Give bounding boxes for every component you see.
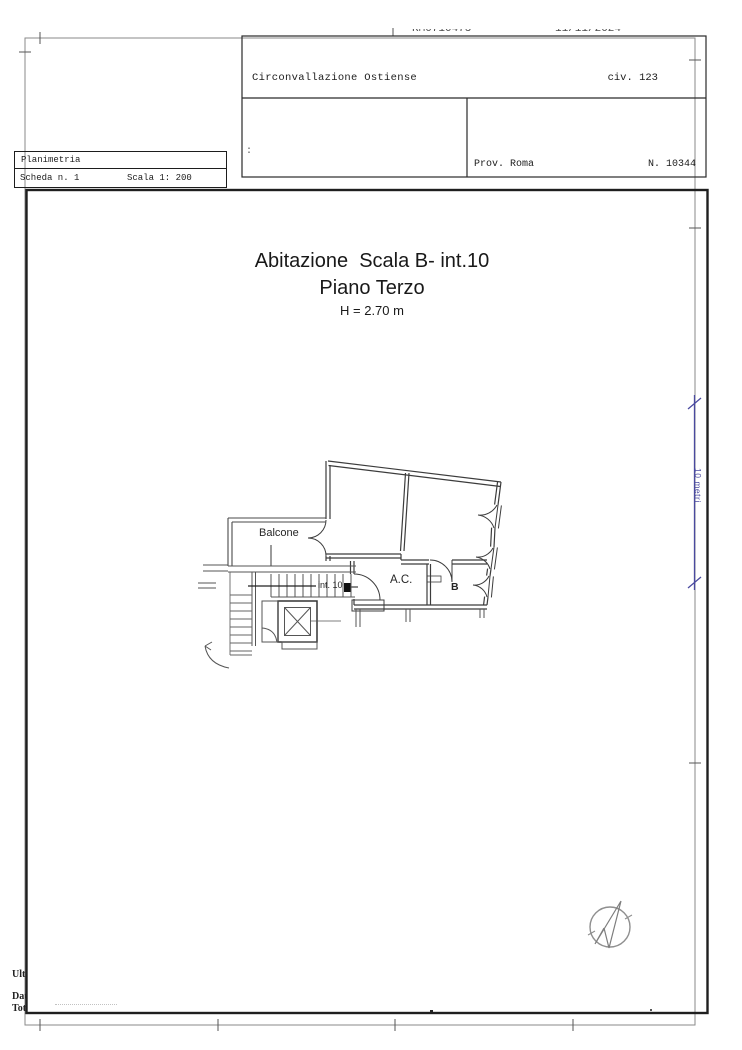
footer-fragment-3: Tot [12,1003,26,1014]
planimetria-page: RM0710475 11/11/2024 Circonvallazione Os… [0,0,742,1050]
plan-title-line2: Piano Terzo [162,277,582,300]
sheet-box-sheet: Scheda n. 1 [20,173,79,183]
civic-number: civ. 123 [592,72,658,84]
unit-label: int. 10 [318,580,343,590]
street-name: Circonvallazione Ostiense [252,72,417,84]
floor-plan [198,461,501,668]
scan-speck [430,1010,433,1012]
sheet-box-title: Planimetria [21,155,80,165]
footer-fragment-2: Dat [12,991,28,1002]
footer-fragment-1: Ult [12,969,25,980]
sheet-box-divider [15,168,226,169]
scan-speck [650,1009,652,1011]
header-separator: : [246,146,252,157]
sheet-number: N. 10344 [630,159,696,170]
header-box-lines [242,36,706,177]
protocol-date-fragment: 11/11/2024 [555,29,621,35]
scale-bar-label: 10 metri [693,468,703,503]
plan-title-line3: H = 2.70 m [162,303,582,318]
sheet-box-scale: Scala 1: 200 [127,173,192,183]
room-b-label: B [451,581,459,593]
province-label: Prov. Roma [474,159,534,170]
balcony-label: Balcone [259,527,299,539]
room-ac-label: A.C. [390,574,412,586]
north-compass-icon [588,901,632,948]
faded-print-smudge [55,1004,117,1005]
clipped-protocol-strip: RM0710475 11/11/2024 [250,29,695,37]
sheet-info-box: Planimetria Scheda n. 1 Scala 1: 200 [14,151,227,188]
protocol-number-fragment: RM0710475 [412,29,471,35]
plan-title-line1: Abitazione Scala B- int.10 [162,250,582,273]
balcony-walls [228,518,326,566]
